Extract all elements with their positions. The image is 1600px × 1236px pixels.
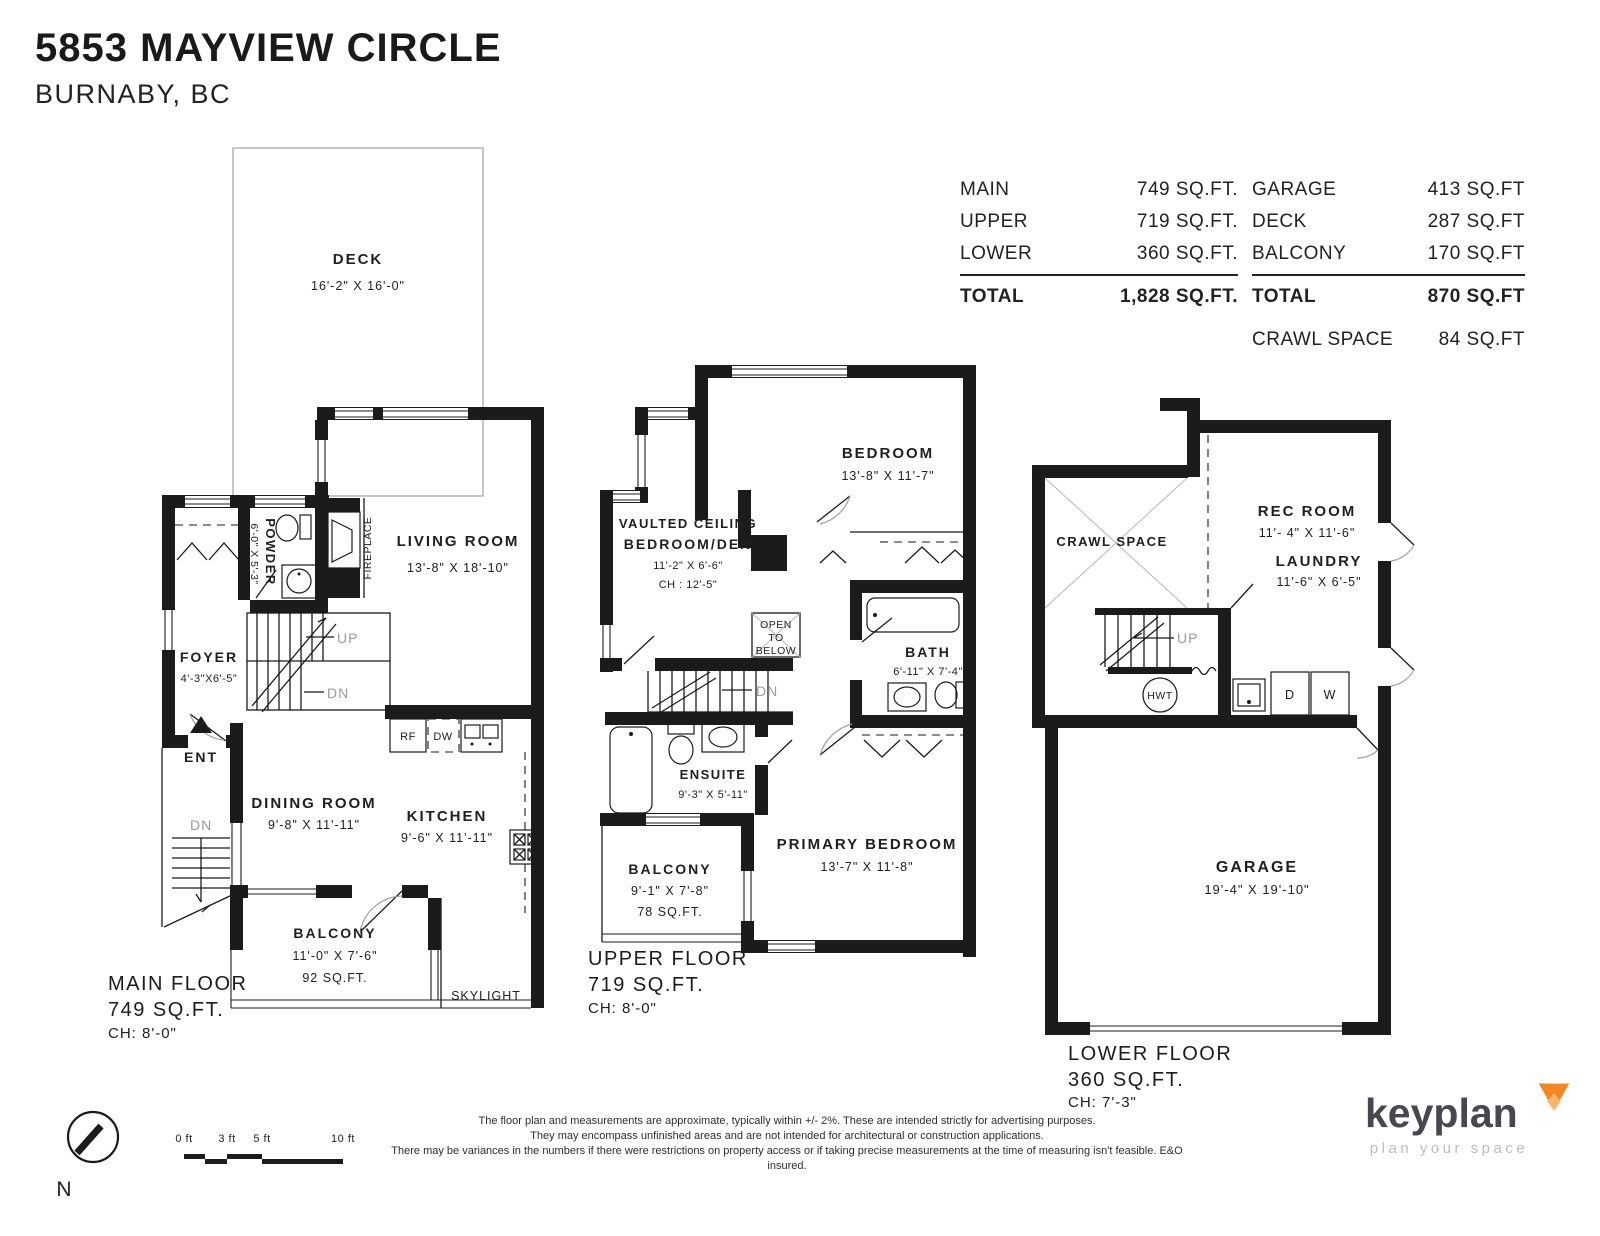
brand-wordmark: keyplan [1365, 1090, 1533, 1137]
brand-tagline: plan your space [1365, 1140, 1533, 1157]
north-label: N [56, 1178, 71, 1201]
row-value: 749 SQ.FT. [1137, 179, 1238, 201]
room-label: DECK [333, 251, 384, 268]
room-dims: 9'-3" X 5'-11" [678, 789, 748, 801]
room-dims: 11'-0" X 7'-6" [292, 949, 377, 963]
room-dims: 11'- 4" X 11'-6" [1259, 526, 1356, 540]
row-label: GARAGE [1252, 179, 1336, 201]
floor-ceiling-height: CH: 8'-0" [108, 1025, 177, 1042]
open-below-label: OPEN [760, 619, 792, 631]
toilet-icon [668, 724, 694, 734]
area-table-right: GARAGE 413 SQ.FT DECK 287 SQ.FT BALCONY … [1252, 174, 1525, 356]
dn-label: DN [327, 685, 349, 701]
page-title: 5853 MAYVIEW CIRCLE [35, 26, 502, 71]
room-dims: 11'-2" X 6'-6" [653, 560, 723, 572]
disclaimer-line: There may be variances in the numbers if… [387, 1144, 1187, 1174]
room-label: BALCONY [293, 925, 376, 941]
fireplace-icon: FIREPLACE [328, 498, 374, 598]
row-label: CRAWL SPACE [1252, 329, 1393, 351]
row-label: BALCONY [1252, 243, 1346, 265]
compass-needle [77, 1126, 101, 1153]
exterior-stairs: DN [162, 748, 232, 927]
door-leaf [1357, 728, 1378, 750]
kitchen: RF DW KITCHEN 9'-6" X 11'-11" [390, 719, 543, 913]
scale-tick: 10 ft [331, 1133, 355, 1145]
row-value: 719 SQ.FT. [1137, 211, 1238, 233]
row-label: LOWER [960, 243, 1032, 265]
room-label: POWDER [263, 518, 278, 586]
main-floor-plan: DECK 16'-2" X 16'-0" [90, 140, 550, 1050]
floor-name: LOWER FLOOR [1068, 1043, 1232, 1065]
room-label: BALCONY [628, 861, 711, 877]
bathroom: BATH 6'-11" X 7'-4" [862, 598, 968, 711]
total-value: 870 SQ.FT [1428, 286, 1525, 308]
foyer-closet [175, 525, 239, 560]
closet-door-chevron [864, 740, 900, 757]
door-leaf [768, 740, 792, 763]
room-label: BATH [905, 644, 951, 660]
bedroom-closet [817, 496, 969, 563]
door-leaf [1391, 648, 1414, 670]
page-subtitle: BURNABY, BC [35, 79, 502, 110]
disclaimer-line: They may encompass unfinished areas and … [387, 1129, 1187, 1144]
lower-walls [1032, 398, 1391, 1035]
room-label: ENSUITE [680, 767, 747, 782]
bathtub-icon [610, 727, 652, 813]
room-dims: 19'-4" X 19'-10" [1204, 882, 1309, 897]
area-table-left: MAIN 749 SQ.FT. UPPER 719 SQ.FT. LOWER 3… [960, 174, 1238, 316]
deck-outline: DECK 16'-2" X 16'-0" [233, 148, 483, 496]
floorplan-sheet: 5853 MAYVIEW CIRCLE BURNABY, BC MAIN 749… [0, 0, 1600, 1236]
row-value: 360 SQ.FT. [1137, 243, 1238, 265]
scale-bar: 0 ft 3 ft 5 ft 10 ft [170, 1128, 380, 1173]
up-label: UP [1177, 630, 1198, 646]
upper-stairs: DN [648, 671, 793, 714]
room-dims: 9'-1" X 7'-8" [631, 884, 709, 898]
room-dims: 6'-11" X 7'-4" [893, 666, 963, 678]
upper-floor-plan: BEDROOM 13'-8" X 11'-7" VAULTED CEILING … [580, 350, 1000, 1030]
door-leaf [624, 636, 654, 664]
disclaimer-line: The floor plan and measurements are appr… [387, 1114, 1187, 1129]
room-dims: 9'-8" X 11'-11" [268, 818, 360, 832]
dn-label: DN [756, 683, 778, 699]
table-row: UPPER 719 SQ.FT. [960, 206, 1238, 238]
room-dims: 13'-8" X 18'-10" [407, 561, 509, 575]
lower-floor-plan: CRAWL SPACE REC ROOM 11'- 4" X 11'-6" UP… [1010, 390, 1420, 1110]
room-dims: 11'-6" X 6'-5" [1276, 575, 1361, 589]
row-label: DECK [1252, 211, 1307, 233]
crawl-space: CRAWL SPACE [1045, 435, 1208, 608]
room-area: 78 SQ.FT. [637, 905, 702, 919]
open-below-label: TO [768, 632, 783, 644]
room-note: VAULTED CEILING [619, 516, 757, 531]
keyplan-logo: keyplan plan your space [1365, 1090, 1533, 1157]
table-row: DECK 287 SQ.FT [1252, 206, 1525, 238]
door-leaf [1391, 523, 1414, 545]
row-value: 170 SQ.FT [1428, 243, 1525, 265]
washer-label: W [1324, 688, 1337, 702]
open-below-label: BELOW [756, 645, 796, 657]
closet-door-chevron [906, 740, 942, 757]
scale-tick: 5 ft [253, 1133, 270, 1145]
main-stairs: UP DN [247, 613, 390, 712]
scale-bar-segments [184, 1154, 343, 1164]
main-walls [162, 407, 544, 1008]
table-divider [960, 274, 1238, 276]
room-label: REC ROOM [1258, 503, 1357, 520]
row-value: 287 SQ.FT [1428, 211, 1525, 233]
floor-name: UPPER FLOOR [588, 948, 748, 970]
toilet-icon [300, 515, 311, 539]
floor-name: MAIN FLOOR [108, 973, 247, 995]
floor-ceiling-height: CH: 8'-0" [588, 1000, 657, 1017]
skylight-label: SKYLIGHT [451, 989, 521, 1003]
floor-area: 360 SQ.FT. [1068, 1069, 1184, 1091]
room-dims: 9'-6" X 11'-11" [401, 831, 493, 845]
upper-floor-label: UPPER FLOOR 719 SQ.FT. CH: 8'-0" [588, 948, 748, 1017]
dishwasher-label: DW [433, 731, 452, 743]
room-label: LIVING ROOM [397, 533, 520, 550]
room-dims: 13'-8" X 11'-7" [841, 469, 934, 483]
row-value: 413 SQ.FT [1428, 179, 1525, 201]
primary-bedroom: PRIMARY BEDROOM 13'-7" X 11'-8" [777, 724, 963, 874]
scale-tick: 0 ft [175, 1133, 192, 1145]
table-total-row: TOTAL 870 SQ.FT [1252, 278, 1525, 316]
floor-area: 719 SQ.FT. [588, 974, 704, 996]
entry-label: ENT [184, 749, 218, 765]
room-label: BEDROOM/DEN [624, 536, 753, 552]
closet-door-chevron [820, 551, 846, 563]
floor-ceiling-height: CH: 7'-3" [1068, 1094, 1137, 1111]
table-row: MAIN 749 SQ.FT. [960, 174, 1238, 206]
upper-balcony: BALCONY 9'-1" X 7'-8" 78 SQ.FT. [628, 861, 711, 919]
fireplace-label: FIREPLACE [362, 517, 374, 580]
powder-room: POWDER 6'-0" X 5'-3" [248, 515, 318, 598]
table-row: GARAGE 413 SQ.FT [1252, 174, 1525, 206]
room-label: FOYER [180, 649, 238, 665]
entry-arrow-icon [190, 716, 212, 733]
dn-label: DN [190, 817, 212, 833]
table-row: LOWER 360 SQ.FT. [960, 238, 1238, 270]
total-value: 1,828 SQ.FT. [1120, 286, 1238, 308]
dryer-label: D [1285, 688, 1295, 702]
room-dims: 13'-7" X 11'-8" [820, 860, 913, 874]
room-label: CRAWL SPACE [1056, 534, 1167, 549]
room-dims: 16'-2" X 16'-0" [311, 279, 405, 293]
floor-area: 749 SQ.FT. [108, 999, 224, 1021]
table-row: BALCONY 170 SQ.FT [1252, 238, 1525, 270]
total-label: TOTAL [1252, 286, 1316, 308]
room-label: PRIMARY BEDROOM [777, 836, 958, 853]
main-balcony: BALCONY 11'-0" X 7'-6" 92 SQ.FT. SKYLIGH… [292, 891, 520, 1008]
up-label: UP [337, 630, 358, 646]
laundry: LAUNDRY 11'-6" X 6'-5" D W [1233, 553, 1362, 715]
room-ceiling: CH : 12'-5" [659, 579, 718, 591]
table-total-row: TOTAL 1,828 SQ.FT. [960, 278, 1238, 316]
scale-tick: 3 ft [218, 1133, 235, 1145]
row-label: UPPER [960, 211, 1028, 233]
table-row-crawl-space: CRAWL SPACE 84 SQ.FT [1252, 324, 1525, 356]
room-dims: 4'-3"X6'-5" [181, 673, 238, 685]
door-leaf [1231, 584, 1253, 608]
north-arrow: N [55, 1100, 135, 1200]
bedroom-den: VAULTED CEILING BEDROOM/DEN 11'-2" X 6'-… [619, 516, 757, 664]
total-label: TOTAL [960, 286, 1024, 308]
table-divider [1252, 274, 1525, 276]
kitchen-sink-icon [461, 719, 502, 752]
closet-door-chevron [209, 543, 239, 560]
room-label: LAUNDRY [1276, 553, 1363, 570]
lower-floor-label: LOWER FLOOR 360 SQ.FT. CH: 7'-3" [1068, 1043, 1232, 1111]
hwt-label: HWT [1147, 690, 1172, 702]
room-label: GARAGE [1216, 859, 1298, 876]
disclaimer: The floor plan and measurements are appr… [387, 1114, 1187, 1174]
room-label: BEDROOM [842, 445, 934, 462]
room-label: DINING ROOM [251, 795, 376, 812]
closet-door-chevron [177, 543, 207, 560]
room-label: KITCHEN [407, 808, 488, 825]
main-floor-label: MAIN FLOOR 749 SQ.FT. CH: 8'-0" [108, 973, 247, 1042]
room-area: 92 SQ.FT. [302, 971, 367, 985]
room-dims: 6'-0" X 5'-3" [248, 523, 260, 584]
row-value: 84 SQ.FT [1439, 329, 1525, 351]
fridge-label: RF [400, 731, 416, 743]
title-block: 5853 MAYVIEW CIRCLE BURNABY, BC [35, 26, 502, 110]
row-label: MAIN [960, 179, 1010, 201]
closet-door-chevron [905, 547, 939, 563]
open-to-below: OPEN TO BELOW [752, 613, 800, 657]
